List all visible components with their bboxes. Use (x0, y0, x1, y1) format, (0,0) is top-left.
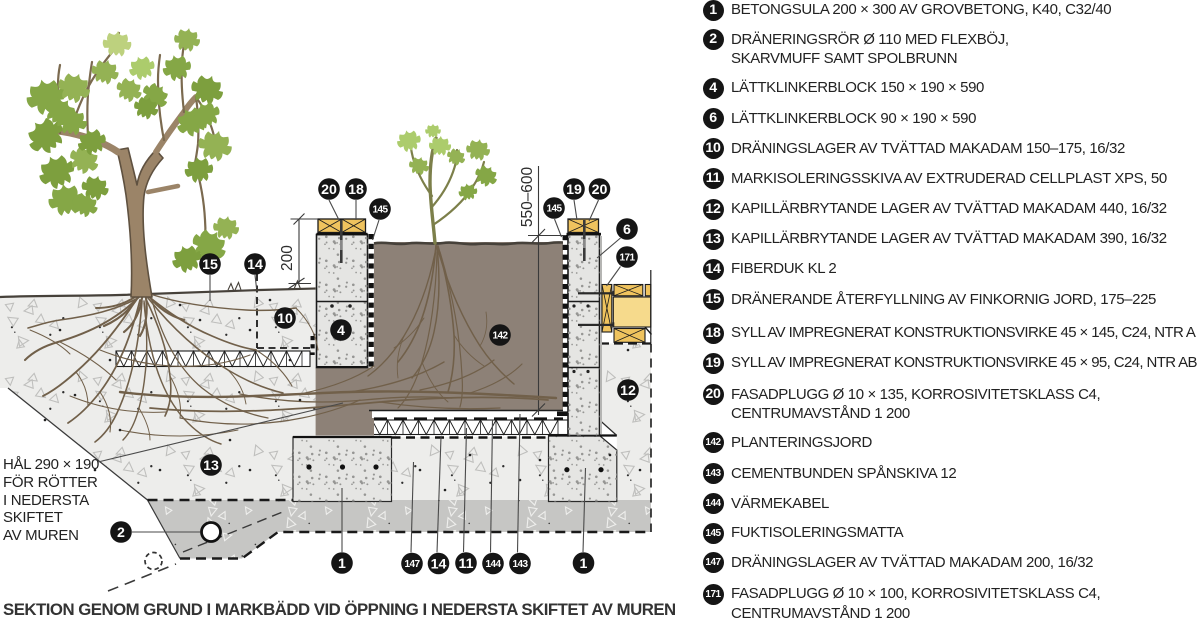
svg-text:11: 11 (459, 556, 474, 572)
svg-text:550–600: 550–600 (519, 166, 536, 227)
svg-text:10: 10 (277, 311, 293, 327)
svg-text:2: 2 (117, 525, 125, 541)
svg-text:171: 171 (620, 253, 636, 264)
svg-text:20: 20 (321, 182, 337, 198)
svg-text:143: 143 (513, 559, 529, 570)
svg-text:145: 145 (547, 204, 563, 215)
svg-text:144: 144 (486, 559, 502, 570)
svg-text:1: 1 (338, 556, 346, 572)
svg-text:142: 142 (493, 331, 509, 342)
svg-text:4: 4 (337, 323, 345, 339)
svg-text:14: 14 (247, 257, 263, 273)
svg-text:1: 1 (580, 556, 588, 572)
svg-text:19: 19 (566, 182, 582, 198)
svg-text:18: 18 (348, 182, 364, 198)
svg-text:15: 15 (202, 257, 218, 273)
svg-text:13: 13 (203, 458, 219, 474)
svg-text:145: 145 (373, 205, 389, 216)
svg-text:147: 147 (405, 559, 421, 570)
svg-text:200: 200 (279, 245, 296, 271)
svg-text:20: 20 (592, 182, 608, 198)
svg-text:14: 14 (431, 557, 447, 573)
svg-text:12: 12 (620, 383, 636, 399)
svg-text:6: 6 (623, 222, 631, 238)
